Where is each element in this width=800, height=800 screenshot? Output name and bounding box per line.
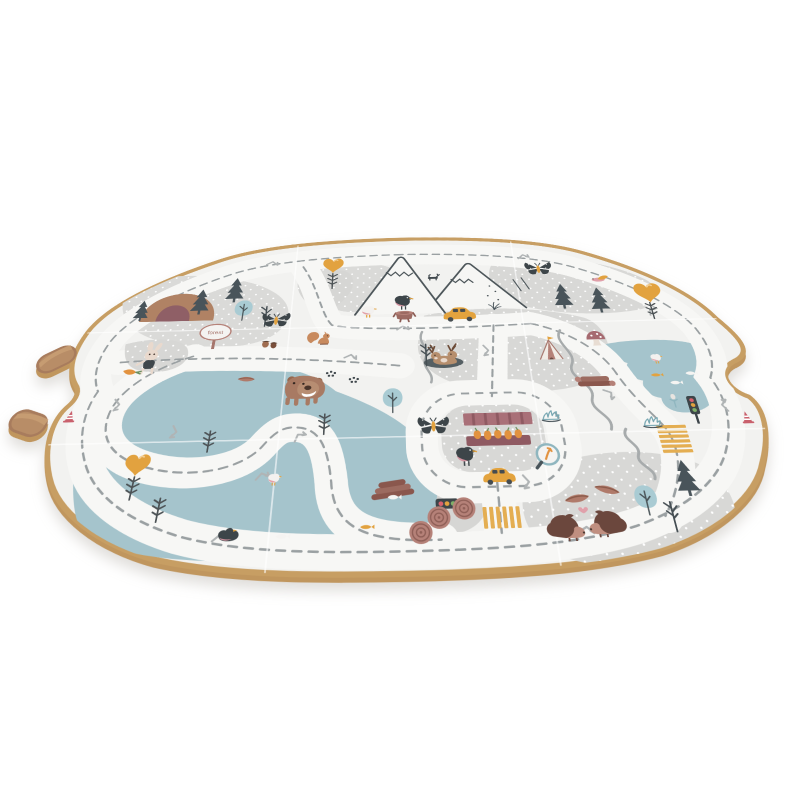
svg-text:forest: forest <box>207 330 224 336</box>
